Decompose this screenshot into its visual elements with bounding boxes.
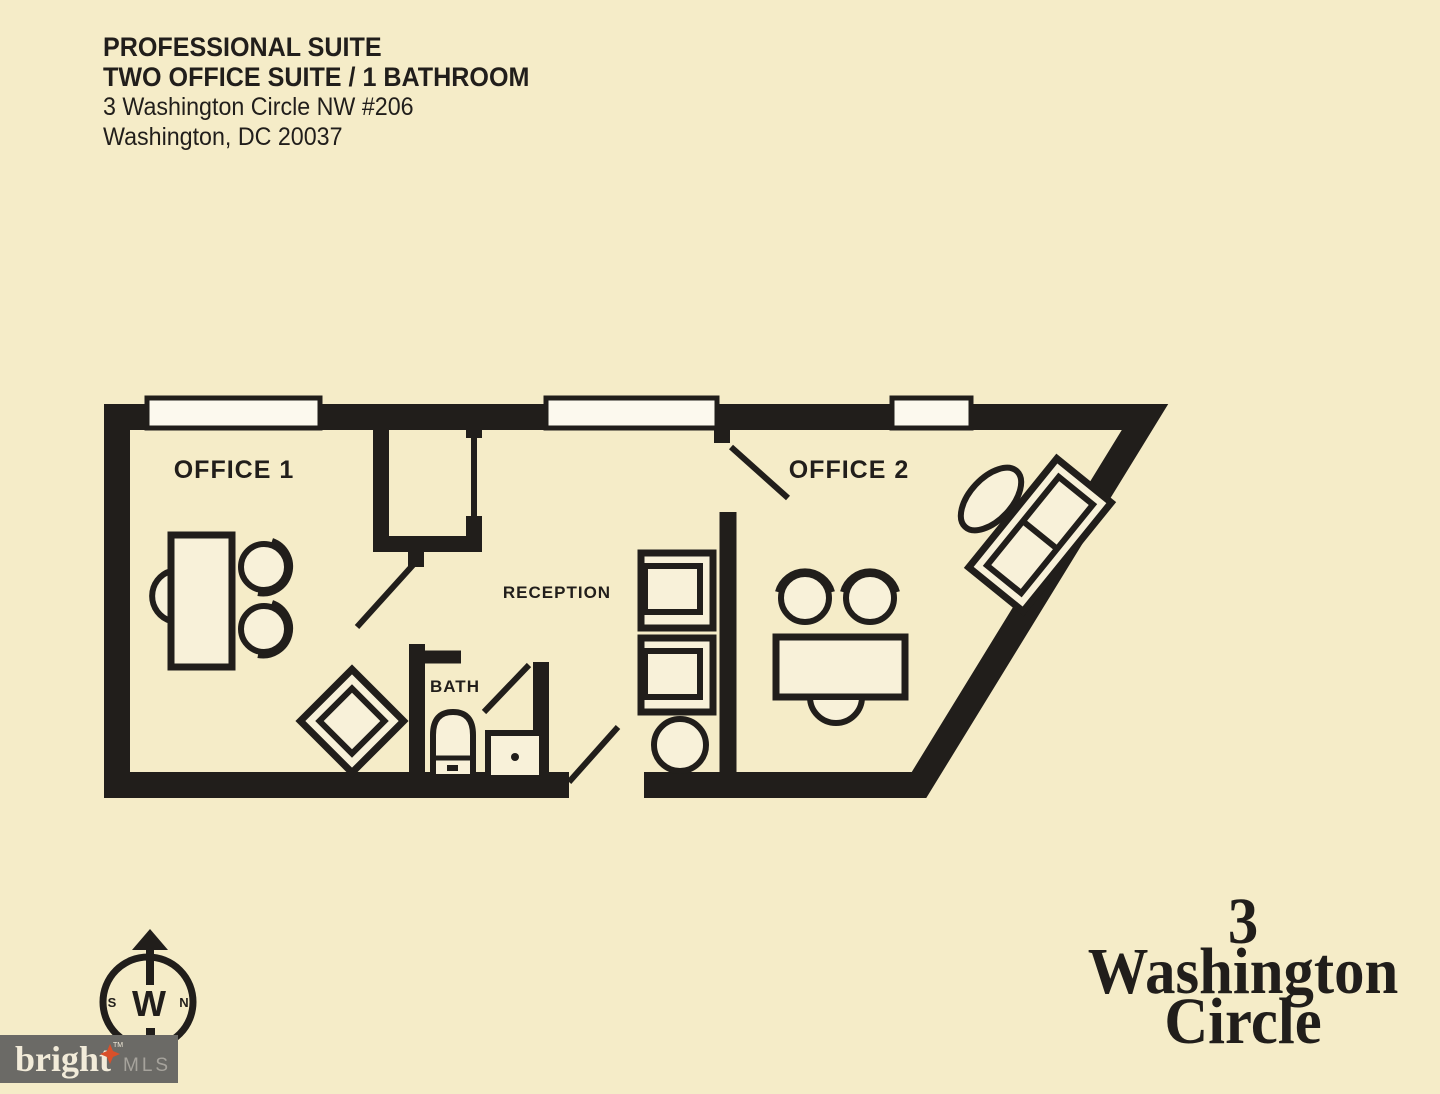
office2-guest-chair-1 bbox=[781, 574, 829, 622]
reception-side-table bbox=[654, 719, 706, 771]
building-name: 3 Washington Circle bbox=[1061, 897, 1425, 1047]
logo-bright-text: bright bbox=[15, 1035, 111, 1083]
compass: W S N bbox=[103, 929, 193, 1047]
compass-south-label: S bbox=[108, 995, 117, 1010]
reception-furniture bbox=[641, 553, 713, 771]
bright-mls-logo: bright TM MLS bbox=[0, 1035, 178, 1083]
office2-label: OFFICE 2 bbox=[789, 456, 910, 484]
compass-needle-head-icon bbox=[132, 929, 168, 950]
logo-trademark: TM bbox=[113, 1042, 123, 1049]
window-office2 bbox=[892, 398, 971, 428]
office2-desk bbox=[776, 637, 905, 697]
bath-label: BATH bbox=[430, 677, 480, 696]
compass-west-label: W bbox=[132, 983, 166, 1024]
toilet-handle bbox=[447, 765, 458, 771]
floorplan-page: PROFESSIONAL SUITE TWO OFFICE SUITE / 1 … bbox=[0, 0, 1440, 1094]
office2-desk-chair bbox=[810, 697, 862, 723]
logo-mls-text: MLS bbox=[123, 1055, 171, 1077]
office1-guest-chair-1 bbox=[241, 544, 287, 590]
window-office1 bbox=[147, 398, 320, 428]
reception-label: RECEPTION bbox=[503, 583, 611, 602]
office2-guest-chair-2 bbox=[846, 574, 894, 622]
office1-guest-chair-2 bbox=[241, 606, 287, 652]
office1-label: OFFICE 1 bbox=[174, 456, 295, 484]
office1-desk bbox=[171, 535, 232, 667]
window-reception bbox=[546, 398, 717, 428]
compass-north-label: N bbox=[179, 995, 188, 1010]
bath-sink-drain bbox=[511, 753, 519, 761]
